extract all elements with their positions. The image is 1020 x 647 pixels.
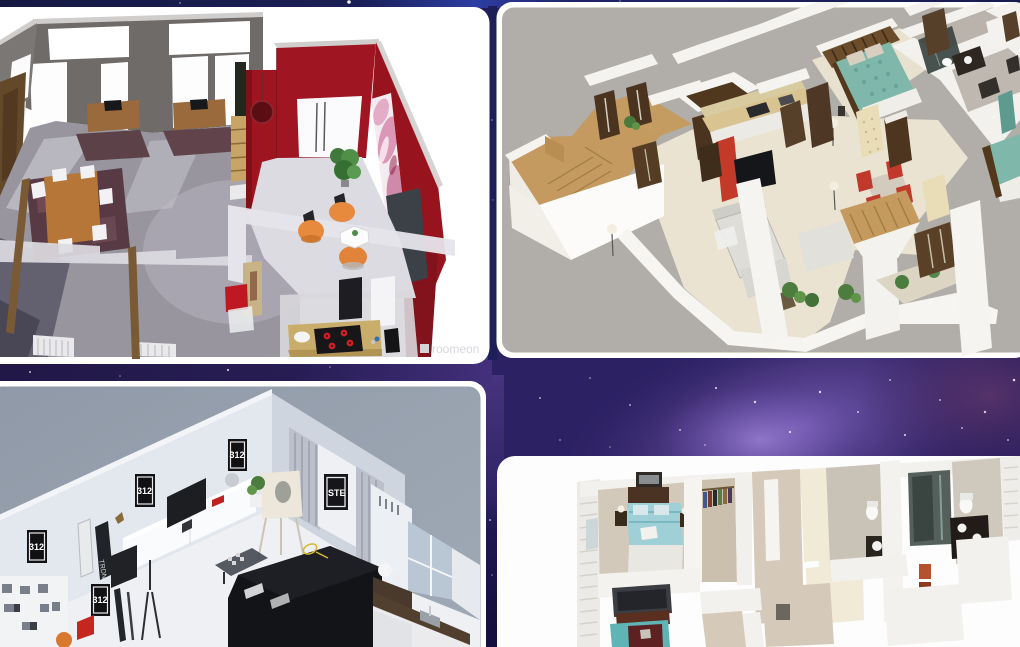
svg-text:312: 312 (137, 486, 152, 496)
svg-text:312: 312 (29, 542, 44, 552)
svg-text:312: 312 (93, 595, 108, 605)
svg-text:roomeon: roomeon (432, 342, 479, 356)
svg-text:312: 312 (230, 450, 245, 460)
svg-text:STE: STE (328, 488, 346, 498)
